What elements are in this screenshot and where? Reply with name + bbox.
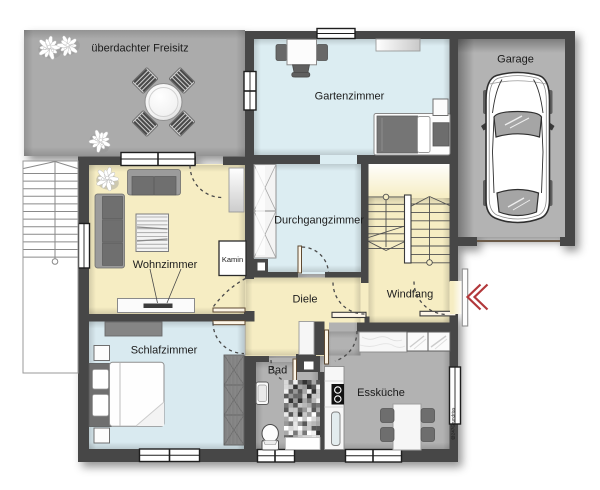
svg-text:Schlafzimmer: Schlafzimmer [131,345,198,357]
svg-text:Bad: Bad [268,365,288,377]
svg-text:Wohnzimmer: Wohnzimmer [133,259,198,271]
svg-text:Essküche: Essküche [357,387,405,399]
svg-text:Durchgangzimmer: Durchgangzimmer [274,215,364,227]
svg-text:Garage: Garage [497,54,534,66]
svg-text:Gartenzimmer: Gartenzimmer [315,91,385,103]
svg-text:überdachter Freisitz: überdachter Freisitz [91,43,188,55]
svg-text:Kamin: Kamin [222,255,243,264]
svg-text:Windfang: Windfang [387,289,433,301]
svg-text:Diele: Diele [292,294,317,306]
svg-text:@247Grundriss: @247Grundriss [451,407,456,440]
